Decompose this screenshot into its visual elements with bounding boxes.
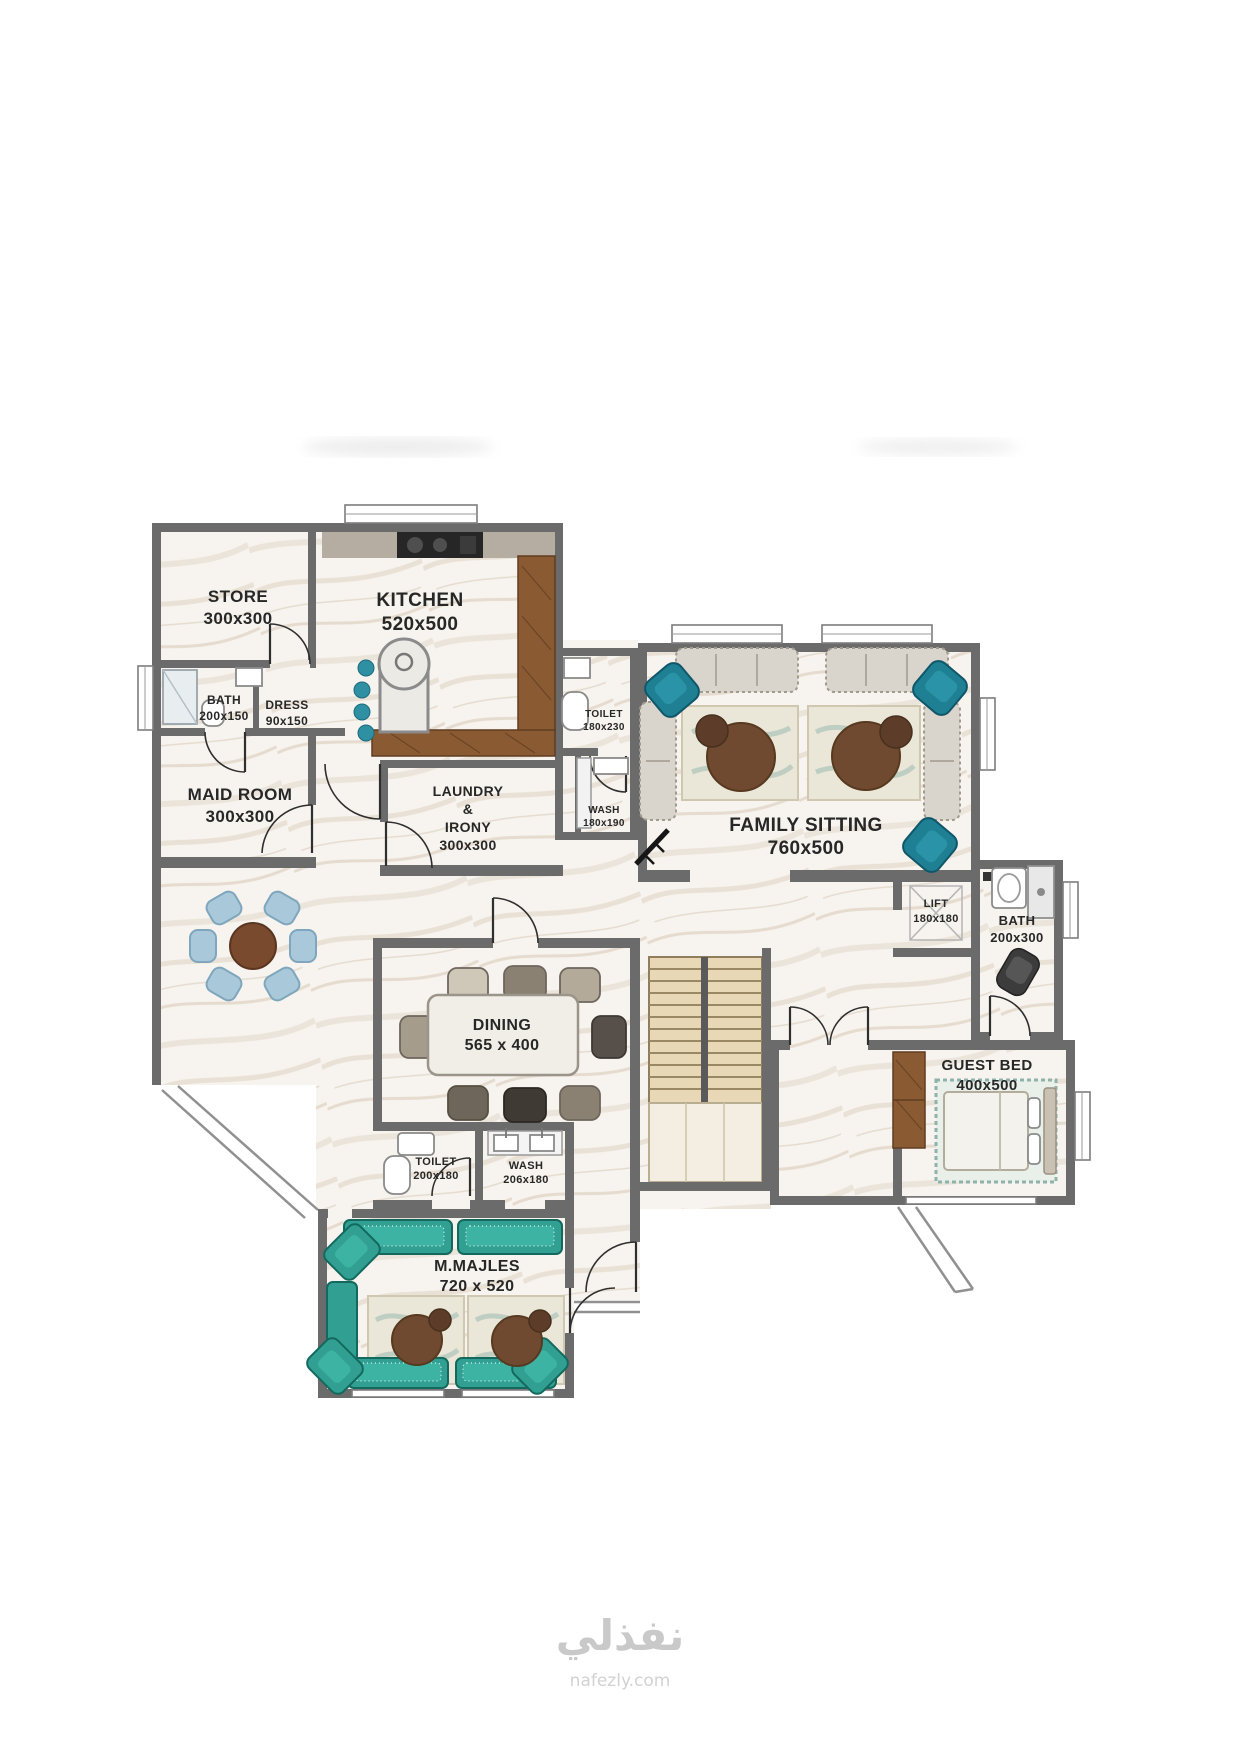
majles-label: M.MAJLES	[434, 1258, 520, 1275]
toilet-lower-label: TOILET	[415, 1156, 456, 1168]
dress-label: DRESS	[265, 698, 308, 712]
page-smudges	[303, 438, 1018, 456]
family-sofa-left	[640, 702, 676, 820]
toilet-lower-dims: 200x180	[413, 1170, 459, 1182]
family-window-left	[672, 625, 782, 643]
dress-dims: 90x150	[266, 714, 308, 728]
dining-table	[428, 995, 578, 1075]
bath-window	[1063, 882, 1078, 938]
floor-plan-page: STORE 300x300 KITCHEN 520x500 BATH 200x1…	[0, 0, 1240, 1755]
dining-label: DINING	[473, 1017, 531, 1034]
wash-lower-fixtures	[488, 1128, 562, 1155]
wash-lower-label: WASH	[509, 1160, 544, 1172]
majles-bottom-window-left	[352, 1390, 444, 1397]
guest-bed-label: GUEST BED	[941, 1057, 1032, 1074]
majles-dims: 720 x 520	[440, 1278, 515, 1295]
guest-bottom-window	[906, 1197, 1036, 1204]
kitchen-island	[379, 639, 429, 732]
guest-bed-dims: 400x500	[956, 1077, 1017, 1094]
family-sitting-label: FAMILY SITTING	[729, 815, 882, 836]
family-sofa-right	[924, 702, 960, 820]
maid-room-dims: 300x300	[206, 807, 275, 826]
toilet-upper-dims: 180x230	[583, 722, 625, 733]
kitchen-dims: 520x500	[382, 614, 459, 635]
staircase	[649, 957, 762, 1182]
laundry-label-3: IRONY	[445, 819, 492, 835]
kitchen-window	[345, 505, 477, 523]
dining-dims: 565 x 400	[465, 1037, 540, 1054]
store-dims: 300x300	[204, 609, 273, 628]
majles-furniture	[304, 1220, 571, 1397]
watermark-site: nafezly.com	[570, 1671, 671, 1691]
family-window-right	[822, 625, 932, 643]
toilet-upper-label: TOILET	[585, 709, 623, 720]
wash-lower-dims: 206x180	[503, 1174, 549, 1186]
maid-bath-window	[138, 666, 153, 730]
guest-wardrobe	[893, 1052, 925, 1148]
watermark: نفذلي nafezly.com	[556, 1611, 685, 1691]
stair-rail	[701, 957, 708, 1103]
maid-bath-dims: 200x150	[199, 709, 249, 723]
laundry-label-2: &	[463, 801, 474, 817]
laundry-dims: 300x300	[439, 837, 496, 853]
maid-bath-label: BATH	[207, 693, 241, 707]
laundry-label-1: LAUNDRY	[433, 783, 504, 799]
family-sitting-dims: 760x500	[768, 838, 845, 859]
wash-upper-dims: 180x190	[583, 818, 625, 829]
watermark-logo: نفذلي	[556, 1611, 685, 1661]
store-label: STORE	[208, 587, 268, 606]
bath-dims: 200x300	[990, 930, 1043, 945]
family-side-window	[980, 698, 995, 770]
kitchen-label: KITCHEN	[376, 590, 463, 611]
wash-upper-label: WASH	[588, 805, 620, 816]
lift-label: LIFT	[924, 898, 949, 910]
round-table	[230, 923, 276, 969]
guest-window	[1075, 1092, 1090, 1160]
lift-dims: 180x180	[913, 913, 959, 925]
bath-label: BATH	[999, 913, 1036, 928]
floor-plan-drawing: STORE 300x300 KITCHEN 520x500 BATH 200x1…	[0, 0, 1240, 1755]
maid-room-label: MAID ROOM	[188, 785, 293, 804]
